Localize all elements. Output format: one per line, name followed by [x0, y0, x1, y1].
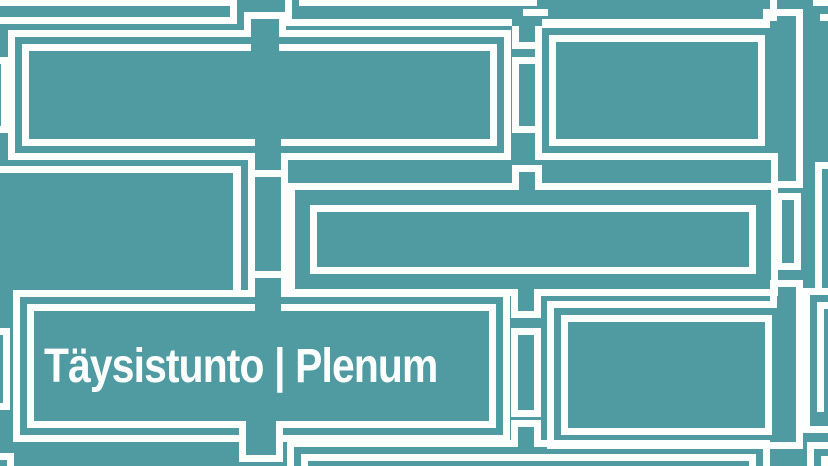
- pattern-segment: [803, 288, 810, 433]
- pattern-frame: [549, 35, 765, 146]
- pattern-patch: [777, 301, 796, 308]
- pattern-segment: [279, 12, 286, 37]
- pattern-patch: [770, 21, 796, 42]
- title-card: Täysistunto | Plenum: [0, 0, 828, 466]
- pattern-segment: [511, 311, 541, 318]
- pattern-frame: [813, 0, 828, 6]
- pattern-segment: [803, 426, 828, 433]
- pattern-segment: [248, 271, 288, 278]
- pattern-segment: [0, 166, 233, 173]
- pattern-segment: [535, 165, 542, 190]
- pattern-segment: [523, 9, 548, 16]
- pattern-frame: [821, 456, 828, 466]
- pattern-segment: [244, 12, 251, 37]
- pattern-segment: [230, 0, 237, 24]
- pattern-patch: [255, 290, 281, 311]
- pattern-frame: [22, 44, 497, 146]
- pattern-segment: [248, 170, 288, 177]
- pattern-patch: [246, 421, 276, 442]
- pattern-frame: [511, 328, 541, 417]
- pattern-segment: [796, 9, 803, 28]
- pattern-patch: [255, 139, 281, 160]
- pattern-patch: [518, 440, 534, 447]
- pattern-segment: [763, 9, 770, 28]
- pattern-segment: [770, 280, 777, 308]
- pattern-patch: [251, 30, 279, 51]
- pattern-frame: [310, 205, 756, 274]
- pattern-segment: [233, 166, 241, 293]
- pattern-segment: [7, 453, 14, 466]
- pattern-segment: [815, 162, 822, 294]
- pattern-frame: [775, 193, 801, 270]
- pattern-frame: [0, 57, 8, 133]
- pattern-segment: [820, 14, 828, 21]
- pattern-segment: [0, 17, 237, 24]
- pattern-segment: [771, 181, 803, 188]
- pattern-frame: [301, 454, 756, 466]
- pattern-frame: [0, 328, 10, 410]
- pattern-segment: [817, 302, 824, 412]
- pattern-frame: [512, 57, 542, 133]
- pattern-segment: [512, 165, 519, 190]
- pattern-frame: [299, 0, 537, 6]
- pattern-segment: [512, 42, 542, 49]
- pattern-segment: [511, 420, 518, 447]
- pattern-frame: [561, 315, 772, 435]
- pattern-patch: [519, 183, 535, 190]
- pattern-segment: [534, 420, 541, 447]
- pattern-segment: [239, 455, 283, 462]
- pattern-segment: [796, 280, 803, 308]
- pattern-patch: [518, 289, 534, 296]
- page-title: Täysistunto | Plenum: [44, 341, 437, 393]
- pattern-segment: [0, 0, 237, 6]
- pattern-patch: [512, 19, 542, 26]
- pattern-patch: [778, 139, 796, 160]
